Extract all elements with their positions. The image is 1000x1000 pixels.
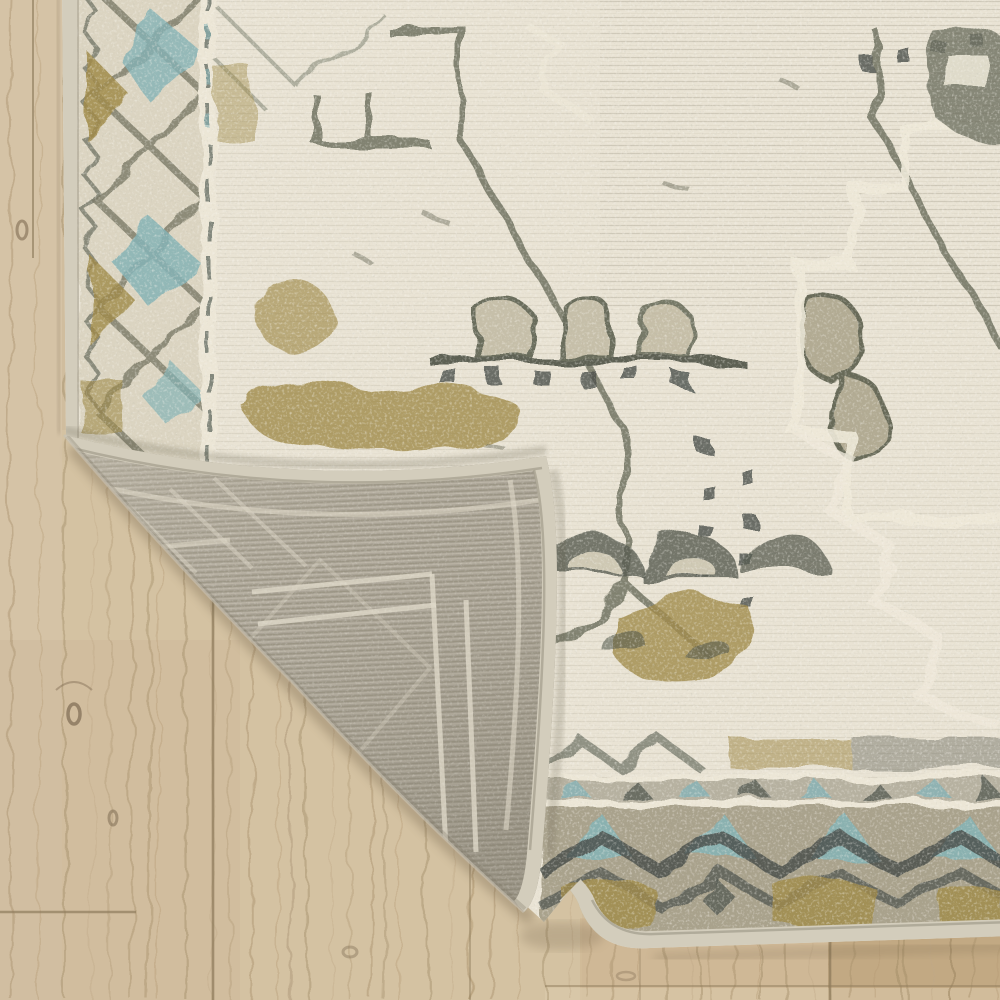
rug-photo <box>0 0 1000 1000</box>
rug-photo-stage <box>0 0 1000 1000</box>
